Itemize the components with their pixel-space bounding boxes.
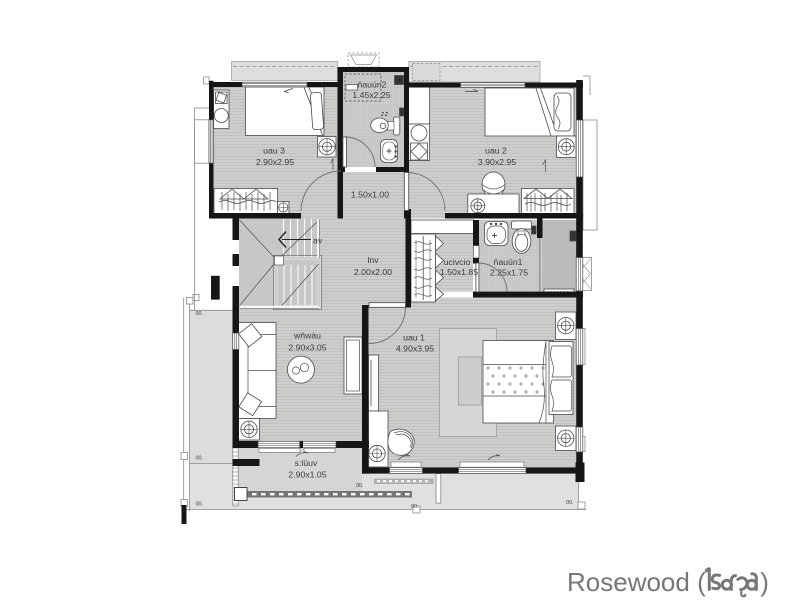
svg-text:): ) [760, 567, 769, 597]
svg-text:uau 2: uau 2 [485, 146, 507, 156]
svg-text:3.90x2.95: 3.90x2.95 [478, 157, 516, 167]
svg-text:av: av [313, 236, 323, 246]
svg-text:1.45x2.25: 1.45x2.25 [352, 90, 390, 100]
svg-text:s:lūuv: s:lūuv [295, 458, 318, 468]
svg-text:ňauún2: ňauún2 [358, 80, 387, 90]
svg-text:00.: 00. [566, 500, 574, 506]
svg-text:00.: 00. [356, 483, 364, 489]
svg-text:1.50x1.00: 1.50x1.00 [351, 190, 389, 200]
svg-text:2.90x1.05: 2.90x1.05 [288, 470, 326, 480]
svg-text:00.: 00. [411, 504, 419, 510]
svg-text:00.: 00. [196, 311, 204, 317]
svg-text:lnv: lnv [367, 255, 379, 265]
svg-text:2.90x2.95: 2.90x2.95 [256, 157, 294, 167]
svg-text:uau 3: uau 3 [263, 146, 285, 156]
svg-text:Rosewood (: Rosewood ( [567, 567, 706, 597]
svg-text:ňauún1: ňauún1 [494, 257, 523, 267]
svg-text:00.: 00. [196, 502, 204, 508]
svg-text:2.00x2.00: 2.00x2.00 [354, 267, 392, 277]
svg-text:2.90x3.05: 2.90x3.05 [288, 343, 326, 353]
svg-text:00.: 00. [196, 456, 204, 462]
svg-text:4.90x3.95: 4.90x3.95 [396, 344, 434, 354]
svg-text:2.25x1.75: 2.25x1.75 [490, 268, 528, 278]
svg-text:wňwàu: wňwàu [293, 331, 321, 341]
svg-text:uau 1: uau 1 [403, 333, 425, 343]
svg-text:1.50x1.85: 1.50x1.85 [440, 267, 478, 277]
svg-text:ucivcio: ucivcio [444, 257, 471, 267]
